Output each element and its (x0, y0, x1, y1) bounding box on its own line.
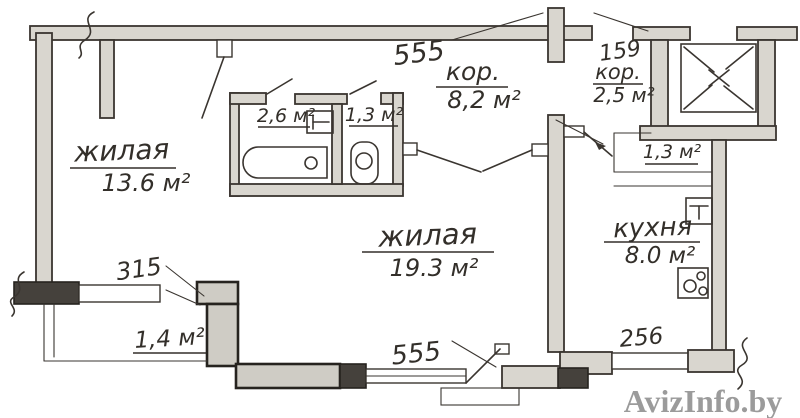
door-jamb-right (532, 144, 548, 156)
shaft-diagonal-1 (684, 47, 714, 72)
shaft-diagonal-2 (726, 47, 753, 69)
south-wall-west (236, 364, 340, 388)
window-east (612, 353, 690, 369)
divider-wall-top-stub (548, 8, 564, 62)
hall-entry-area: 2,5 м² (593, 83, 654, 107)
hall-main-name: кор. (446, 57, 500, 86)
kitchen-area: 8.0 м² (625, 243, 695, 269)
labels: жилая 13.6 м² жилая 19.3 м² 555 кор. 8,2… (70, 35, 701, 372)
top-wall (30, 26, 592, 40)
watermark-text: AvizInfo.by (624, 383, 783, 418)
south-wall-east (688, 350, 734, 372)
door-living-left (202, 40, 232, 118)
closet-area: 1,3 м² (643, 141, 702, 163)
floor-plan-drawing: жилая 13.6 м² жилая 19.3 м² 555 кор. 8,2… (0, 0, 800, 418)
balcony-dim: 315 (114, 252, 163, 286)
door-jamb (564, 126, 584, 137)
wall-break-bottom-right (738, 338, 747, 389)
door-living-center (403, 143, 548, 172)
shaft-diagonal-4 (724, 86, 753, 109)
bath-wall-bottom (230, 184, 403, 196)
toilet (351, 142, 378, 184)
bath-wall-left (230, 93, 239, 196)
divider-wall (548, 115, 564, 352)
central-wall-vertical (207, 304, 238, 366)
kitchen-name: кухня (613, 212, 693, 245)
hall-entry-leader (594, 13, 648, 31)
window-south-dim: 555 (390, 337, 443, 372)
kitchen-right-wall (712, 140, 726, 352)
door-jamb (217, 40, 232, 57)
window-east-dim: 256 (618, 323, 664, 353)
south-wall-west-cap (340, 364, 366, 388)
room-living-left-area: 13.6 м² (102, 169, 191, 197)
balcony-wall-block (14, 282, 79, 304)
door-jamb-left (403, 143, 417, 155)
room-living-left-name: жилая (72, 132, 169, 168)
balcony-leader-2 (166, 290, 200, 305)
shaft-wall-bottom (640, 126, 776, 140)
wc-door-leaf (350, 81, 376, 94)
left-wall-stub (100, 40, 114, 118)
floor-plan-scan: жилая 13.6 м² жилая 19.3 м² 555 кор. 8,2… (0, 0, 800, 418)
left-wall (36, 33, 52, 283)
stove-burner-2 (697, 272, 705, 280)
bathtub-drain (305, 157, 317, 169)
room-living-center-name: жилая (377, 216, 478, 253)
window-south-leader (452, 341, 496, 367)
hall-entry-name: кор. (595, 60, 641, 84)
balcony-area: 1,4 м² (134, 324, 206, 354)
bathtub (243, 147, 327, 178)
elevator-shaft (633, 27, 797, 140)
stove-burner-3 (699, 287, 707, 295)
door-leaf (202, 57, 224, 118)
wc-area: 1,3 м² (345, 104, 404, 126)
bath-wall-top-1 (230, 93, 266, 104)
central-wall-top (197, 282, 238, 304)
south-wall-mid (502, 366, 560, 388)
shaft-wall-right (758, 40, 775, 130)
shaft-diagonal-3 (684, 85, 712, 109)
door-leaf-left (417, 150, 481, 172)
bathroom-area: 2,6 м² (257, 105, 316, 127)
door-leaf-right (483, 150, 532, 171)
hall-kitchen-wall (548, 115, 564, 352)
room-living-center-area: 19.3 м² (390, 254, 479, 282)
balcony-threshold (441, 388, 519, 405)
hall-main-dim: 555 (391, 35, 446, 72)
hall-main-area: 8,2 м² (447, 86, 521, 114)
shaft-flange-right (737, 27, 797, 40)
bath-door-leaf (267, 79, 292, 94)
bath-wall-top-2 (295, 94, 347, 104)
stove-burner-1 (684, 280, 696, 292)
window-balcony-315 (79, 285, 160, 302)
toilet-bowl (356, 153, 372, 169)
south-wall-step (558, 368, 588, 388)
